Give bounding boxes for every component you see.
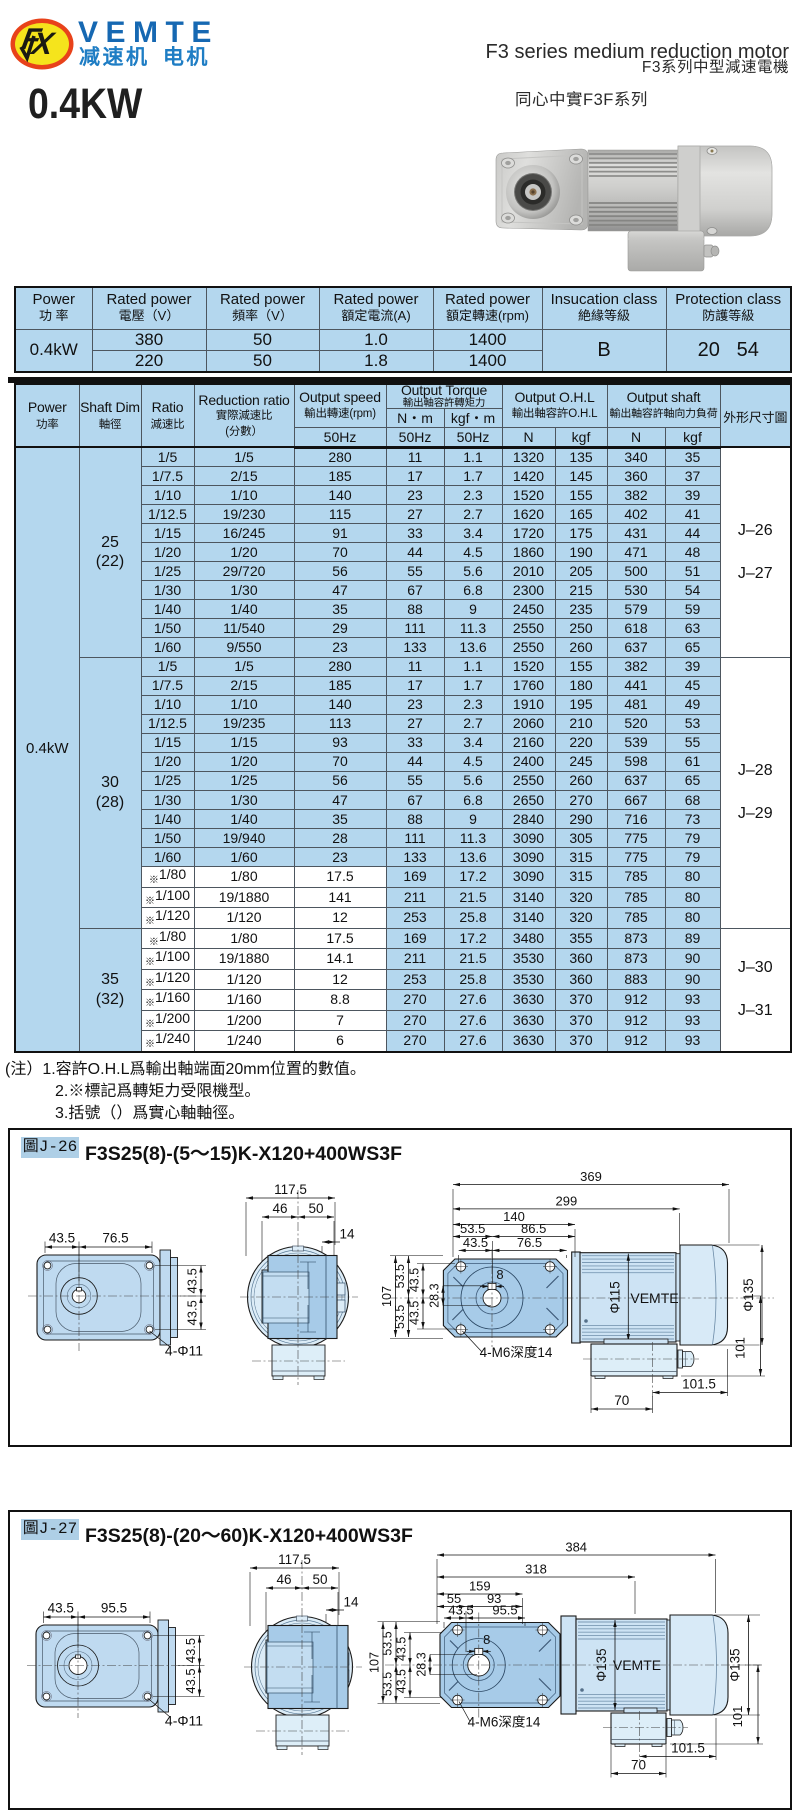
svg-text:318: 318: [525, 1562, 547, 1577]
svg-text:VEMTE: VEMTE: [630, 1290, 678, 1306]
svg-text:4-Φ11: 4-Φ11: [165, 1343, 203, 1359]
svg-text:53.5: 53.5: [381, 1672, 395, 1696]
svg-text:43.5: 43.5: [48, 1601, 74, 1616]
svg-text:4-Φ11: 4-Φ11: [165, 1713, 203, 1729]
svg-text:53.5: 53.5: [381, 1631, 395, 1655]
svg-text:76.5: 76.5: [517, 1235, 542, 1250]
svg-text:299: 299: [556, 1193, 578, 1208]
svg-text:4-M6深度14: 4-M6深度14: [468, 1715, 541, 1730]
svg-text:14: 14: [339, 1227, 355, 1242]
svg-text:101.5: 101.5: [671, 1740, 705, 1755]
svg-text:50: 50: [312, 1572, 327, 1587]
svg-text:43.5: 43.5: [395, 1669, 409, 1693]
svg-text:43.5: 43.5: [395, 1637, 409, 1661]
svg-text:Φ115: Φ115: [607, 1281, 622, 1313]
svg-text:107: 107: [368, 1652, 382, 1673]
svg-text:46: 46: [276, 1572, 291, 1587]
svg-text:369: 369: [580, 1169, 602, 1184]
svg-text:117.5: 117.5: [278, 1552, 311, 1567]
svg-text:Φ135: Φ135: [741, 1278, 756, 1311]
svg-text:50: 50: [308, 1201, 323, 1216]
svg-text:43.5: 43.5: [183, 1638, 198, 1663]
svg-text:76.5: 76.5: [102, 1231, 128, 1246]
svg-text:43.5: 43.5: [183, 1668, 198, 1693]
svg-text:46: 46: [272, 1201, 287, 1216]
svg-text:43.5: 43.5: [185, 1300, 200, 1325]
svg-text:43.5: 43.5: [408, 1268, 422, 1292]
svg-text:95.5: 95.5: [101, 1601, 127, 1616]
svg-text:14: 14: [343, 1595, 359, 1610]
svg-text:4-M6深度14: 4-M6深度14: [480, 1345, 553, 1360]
svg-text:53.5: 53.5: [460, 1221, 485, 1236]
svg-text:43.5: 43.5: [49, 1231, 75, 1246]
svg-text:384: 384: [565, 1540, 587, 1555]
svg-text:53.5: 53.5: [393, 1305, 407, 1329]
svg-text:107: 107: [380, 1286, 394, 1307]
svg-text:86.5: 86.5: [521, 1221, 546, 1236]
svg-text:101.5: 101.5: [682, 1377, 716, 1392]
svg-text:101: 101: [730, 1706, 745, 1728]
svg-text:28.3: 28.3: [415, 1652, 429, 1676]
svg-text:70: 70: [631, 1758, 646, 1773]
svg-text:43.5: 43.5: [448, 1603, 473, 1618]
svg-text:95.5: 95.5: [492, 1603, 517, 1618]
svg-text:117.5: 117.5: [274, 1182, 307, 1197]
svg-text:53.5: 53.5: [393, 1264, 407, 1288]
svg-text:8: 8: [483, 1632, 490, 1647]
svg-text:43.5: 43.5: [185, 1268, 200, 1293]
svg-text:43.5: 43.5: [408, 1301, 422, 1325]
svg-text:70: 70: [614, 1393, 629, 1408]
svg-text:101: 101: [733, 1337, 748, 1359]
svg-text:28.3: 28.3: [428, 1283, 442, 1307]
svg-text:8: 8: [496, 1267, 503, 1282]
svg-text:43.5: 43.5: [463, 1235, 488, 1250]
